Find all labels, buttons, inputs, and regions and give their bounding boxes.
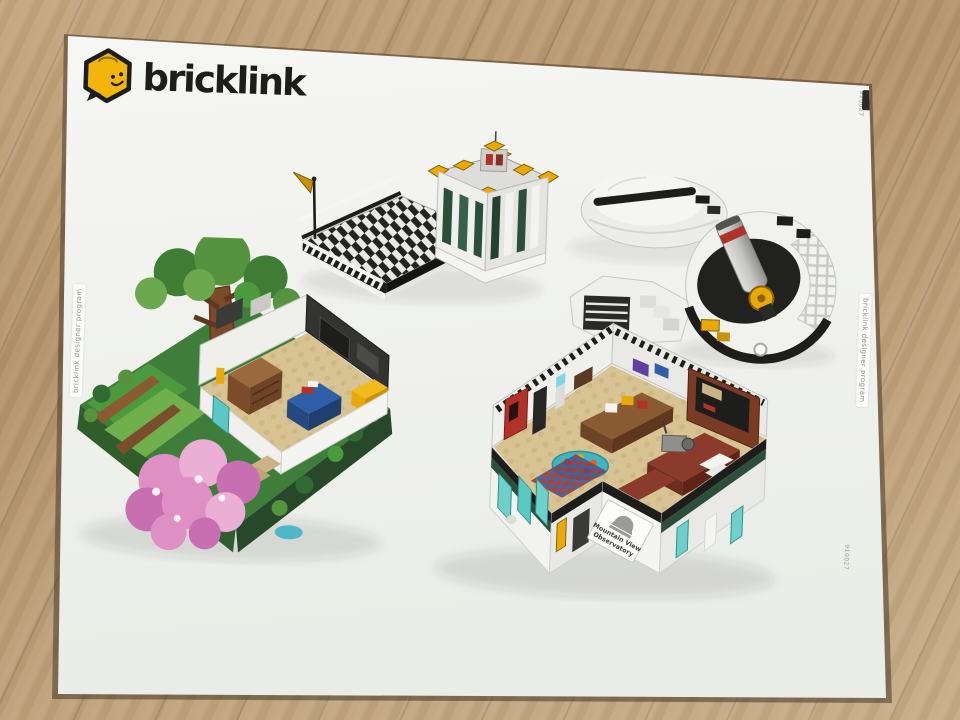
photo-scene: bricklink bricklink designer program bri… bbox=[0, 0, 960, 720]
brand-wordmark: bricklink bbox=[142, 55, 306, 104]
yellow-bottle bbox=[216, 368, 225, 384]
box-art: bricklink bricklink designer program bri… bbox=[37, 34, 871, 717]
model-main-building: Mountain View Observatory bbox=[398, 296, 807, 618]
bricklink-logo: bricklink bbox=[80, 47, 306, 111]
lego-box: bricklink bricklink designer program bri… bbox=[0, 0, 960, 720]
model-garden-house bbox=[49, 232, 422, 578]
water-cooler bbox=[555, 372, 565, 409]
right-edge-label: bricklink designer program bbox=[856, 294, 872, 407]
tall-cabinet bbox=[532, 386, 547, 435]
yellow-sign bbox=[556, 518, 566, 552]
box-side-slit bbox=[56, 114, 62, 132]
roof-turret bbox=[480, 141, 507, 172]
bottom-right-code: 910027 bbox=[842, 544, 850, 570]
bricklink-head-icon bbox=[80, 47, 136, 105]
